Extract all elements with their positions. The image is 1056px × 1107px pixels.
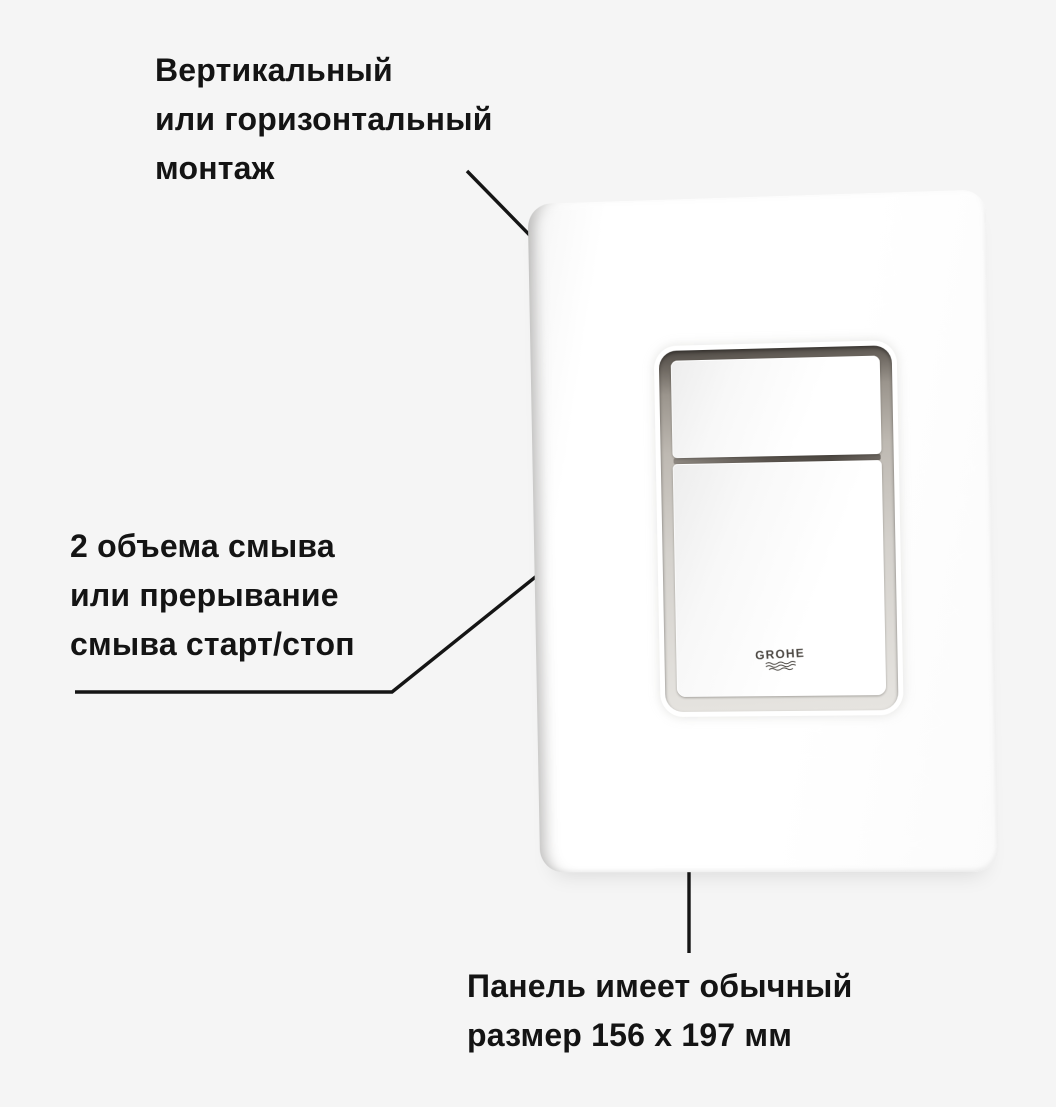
annotation-flush-line3: смыва старт/стоп <box>70 620 355 669</box>
annotation-size-line2: размер 156 x 197 мм <box>467 1011 852 1060</box>
annotation-panel-size: Панель имеет обычный размер 156 x 197 мм <box>467 962 852 1060</box>
grohe-logo: GROHE <box>755 648 806 674</box>
grohe-waves-icon <box>764 660 798 673</box>
annotation-mount-line3: монтаж <box>155 144 493 193</box>
flush-plate-panel: GROHE <box>528 189 999 872</box>
figure-canvas: Вертикальный или горизонтальный монтаж 2… <box>0 0 1056 1107</box>
annotation-mount-line1: Вертикальный <box>155 46 493 95</box>
annotation-mount-line2: или горизонтальный <box>155 95 493 144</box>
annotation-flush-modes: 2 объема смыва или прерывание смыва стар… <box>70 522 355 669</box>
large-flush-button: GROHE <box>673 460 887 697</box>
small-flush-button <box>671 356 882 459</box>
button-recess: GROHE <box>659 345 899 712</box>
annotation-size-line1: Панель имеет обычный <box>467 962 852 1011</box>
annotation-flush-line1: 2 объема смыва <box>70 522 355 571</box>
grohe-brand-text: GROHE <box>755 648 805 662</box>
annotation-mount: Вертикальный или горизонтальный монтаж <box>155 46 493 193</box>
annotation-flush-line2: или прерывание <box>70 571 355 620</box>
